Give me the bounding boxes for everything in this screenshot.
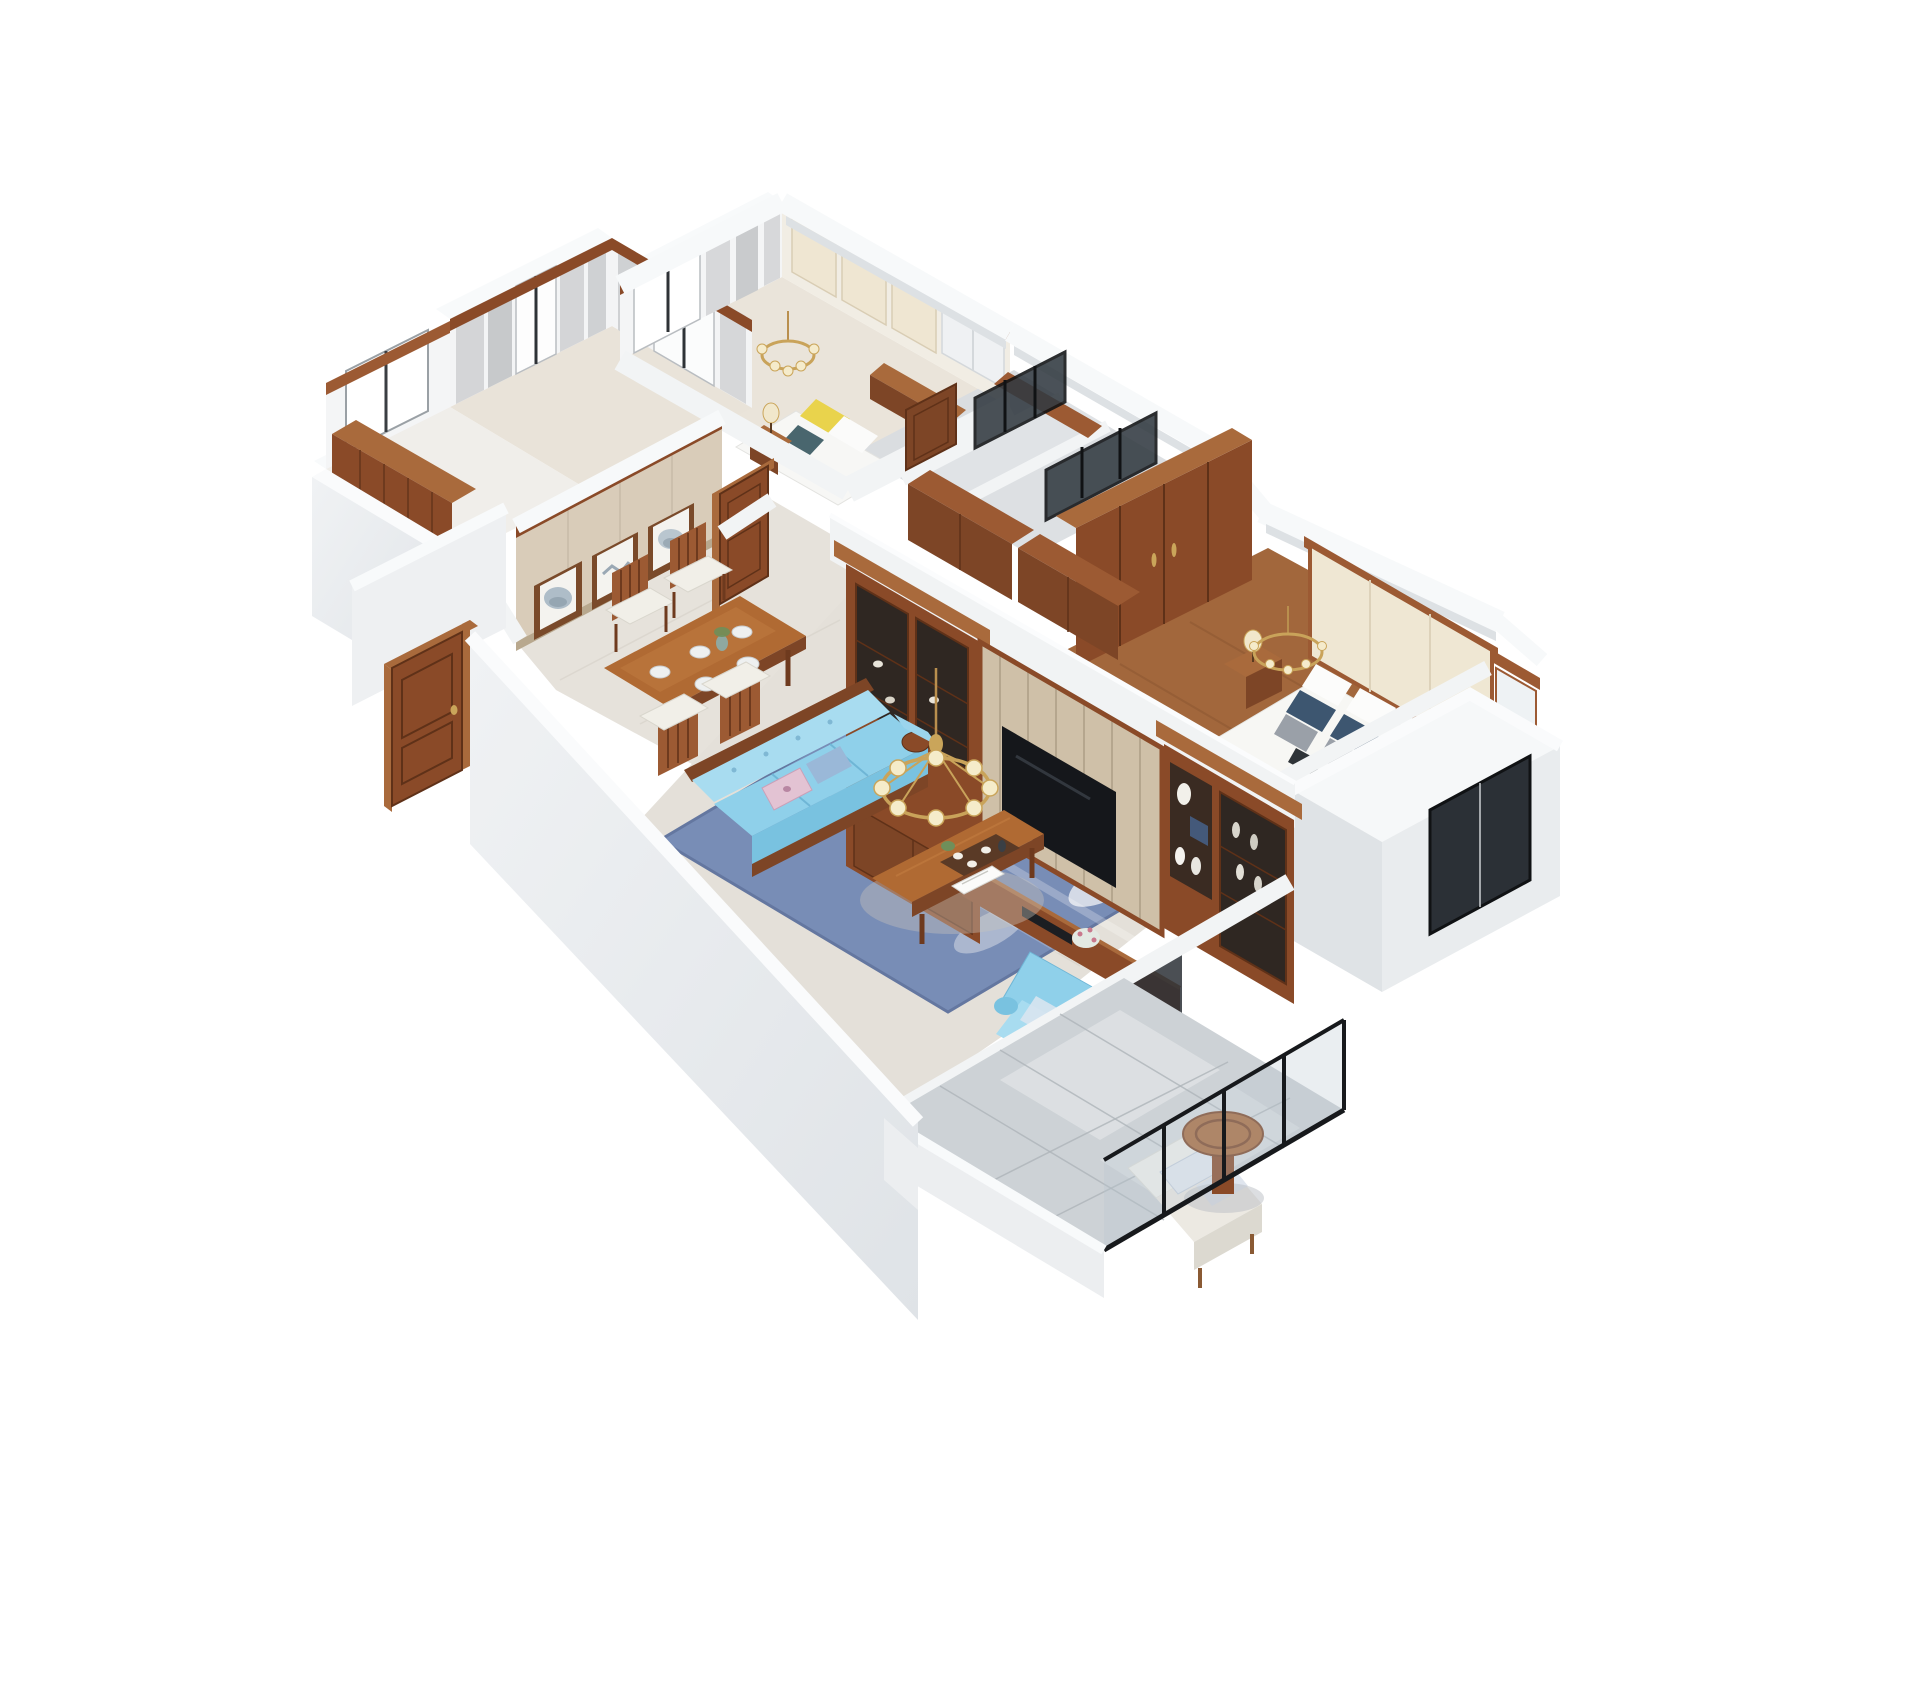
table-vase-flowers bbox=[714, 627, 730, 637]
console-flower-dot-2 bbox=[1088, 928, 1093, 933]
bn-bulb-3 bbox=[783, 366, 793, 376]
wine-vase bbox=[1177, 783, 1191, 805]
ct-cup-3 bbox=[981, 847, 991, 854]
bn-bulb-2 bbox=[770, 361, 780, 371]
ct-cup-2 bbox=[967, 861, 977, 868]
entry-doorframe-left bbox=[384, 664, 392, 812]
wine-bottle-1 bbox=[1175, 847, 1185, 865]
chand-bulb-1 bbox=[874, 780, 890, 796]
ct-cup-1 bbox=[953, 853, 963, 860]
ct-bottle bbox=[998, 840, 1006, 852]
art-circle-1b bbox=[549, 597, 567, 607]
plate-3 bbox=[732, 626, 752, 638]
sofa-tuft-1 bbox=[732, 768, 737, 773]
m-bulb-1 bbox=[1250, 642, 1259, 651]
sofa-pillow-floral-dot bbox=[783, 786, 791, 792]
bookcase-cup-2 bbox=[885, 697, 895, 704]
wardrobe-handle-2 bbox=[1172, 543, 1177, 557]
console-flower-dot-1 bbox=[1078, 932, 1083, 937]
bookcase-cup-3 bbox=[929, 697, 939, 704]
ct-plant bbox=[941, 841, 955, 851]
hall-door-frame-left bbox=[712, 490, 720, 614]
m-bulb-3 bbox=[1284, 666, 1293, 675]
m-bulb-4 bbox=[1302, 660, 1311, 669]
chand-bulb-4 bbox=[966, 760, 982, 776]
bn-bulb-1 bbox=[757, 344, 767, 354]
bn-bulb-5 bbox=[809, 344, 819, 354]
bn-lamp bbox=[763, 403, 779, 423]
chand-bulb-6 bbox=[966, 800, 982, 816]
sofa-tuft-4 bbox=[828, 720, 833, 725]
table-vase bbox=[716, 635, 728, 651]
sofa-tuft-3 bbox=[796, 736, 801, 741]
console-flowers bbox=[1072, 928, 1100, 948]
plate-1 bbox=[650, 666, 670, 678]
chand-bulb-3 bbox=[928, 750, 944, 766]
roofline-f bbox=[1496, 620, 1542, 660]
chand-bulb-7 bbox=[928, 810, 944, 826]
wine-bottle-2 bbox=[1191, 857, 1201, 875]
chand-bulb-8 bbox=[890, 800, 906, 816]
wine-bottle-4 bbox=[1250, 834, 1258, 850]
bookcase-cup-1 bbox=[873, 661, 883, 668]
chand-bulb-2 bbox=[890, 760, 906, 776]
m-bulb-2 bbox=[1266, 660, 1275, 669]
m-bulb-5 bbox=[1318, 642, 1327, 651]
armchair-arm-left bbox=[994, 997, 1018, 1015]
plate-2 bbox=[690, 646, 710, 658]
floorplan-render-page bbox=[0, 0, 1920, 1688]
wine-bottle-3 bbox=[1232, 822, 1240, 838]
console-flower-dot-3 bbox=[1092, 938, 1097, 943]
chand-bulb-5 bbox=[982, 780, 998, 796]
wardrobe-handle-1 bbox=[1152, 553, 1157, 567]
sofa-tuft-2 bbox=[764, 752, 769, 757]
apartment-isometric-render bbox=[0, 0, 1920, 1688]
wine-bottle-5 bbox=[1236, 864, 1244, 880]
bn-bulb-4 bbox=[796, 361, 806, 371]
entry-door-handle bbox=[451, 705, 458, 715]
